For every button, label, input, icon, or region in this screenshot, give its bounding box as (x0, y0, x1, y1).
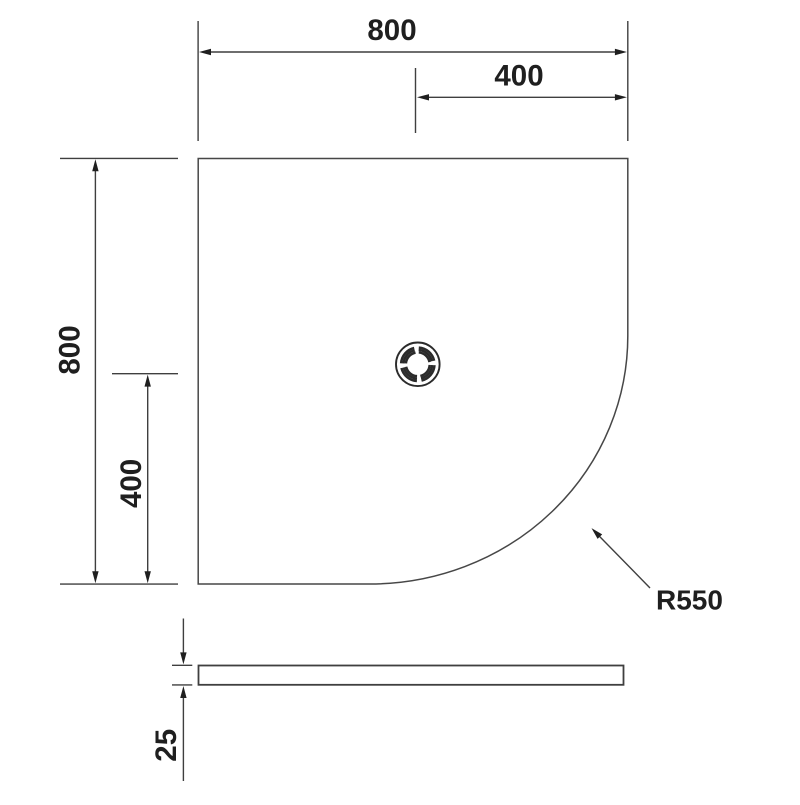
svg-text:400: 400 (494, 59, 543, 92)
svg-text:800: 800 (367, 14, 416, 47)
svg-text:25: 25 (150, 729, 183, 762)
svg-text:R550: R550 (656, 585, 723, 616)
svg-text:800: 800 (54, 325, 87, 374)
svg-text:400: 400 (115, 459, 148, 508)
